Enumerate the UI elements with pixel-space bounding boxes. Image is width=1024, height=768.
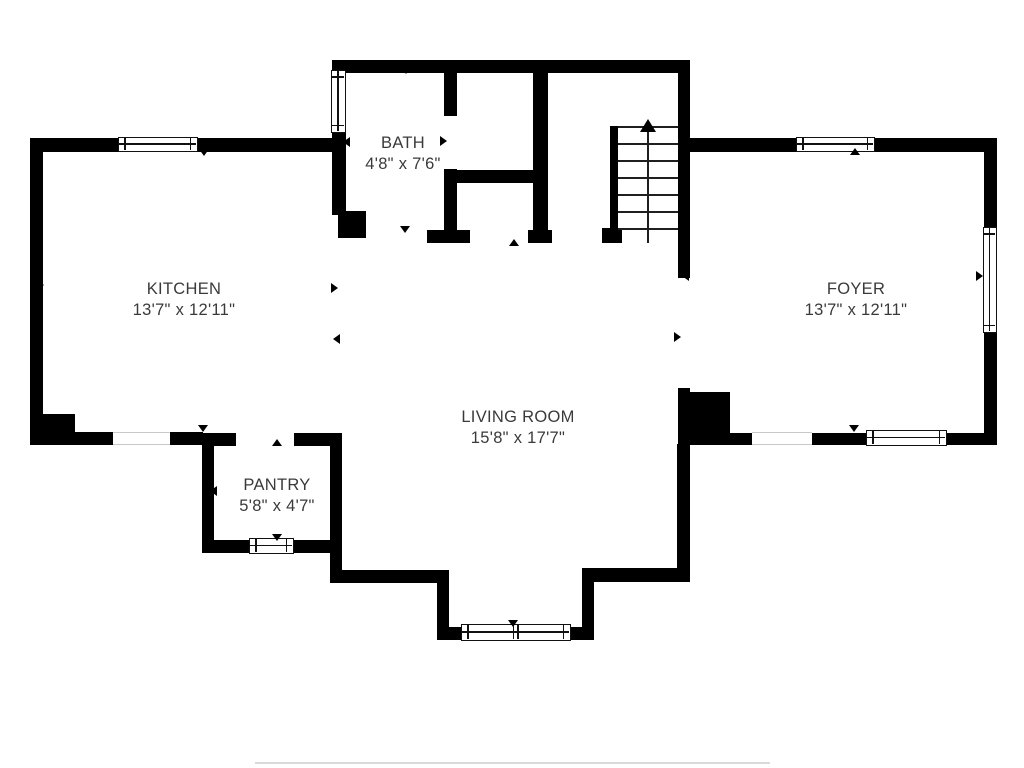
wall-segment (338, 211, 366, 238)
window-glyph (866, 430, 947, 446)
opening-marker-right (37, 280, 44, 290)
window-frame-line (467, 625, 469, 639)
room-name-kitchen: KITCHEN (133, 279, 236, 300)
window-frame-line (337, 71, 339, 131)
opening-marker-down (199, 149, 209, 156)
room-name-living-room: LIVING ROOM (461, 407, 574, 428)
window-frame-line (867, 437, 945, 439)
floor-plan: BATH 4'8" x 7'6" KITCHEN 13'7" x 12'11" … (0, 0, 1024, 768)
room-label-living-room: LIVING ROOM 15'8" x 17'7" (461, 407, 574, 449)
opening-marker-right (331, 283, 338, 293)
opening-marker-up (850, 148, 860, 155)
opening-marker-down (272, 534, 282, 541)
wall-segment (335, 60, 690, 73)
window-frame-line (286, 539, 288, 552)
room-label-foyer: FOYER 13'7" x 12'11" (805, 279, 908, 321)
room-dimensions-bath: 4'8" x 7'6" (365, 154, 440, 175)
room-label-bath: BATH 4'8" x 7'6" (365, 133, 440, 175)
opening-marker-left (682, 271, 689, 281)
room-name-pantry: PANTRY (239, 475, 314, 496)
wall-segment (812, 433, 868, 445)
window-glyph (983, 227, 997, 333)
room-label-kitchen: KITCHEN 13'7" x 12'11" (133, 279, 236, 321)
window-frame-line (513, 625, 515, 639)
window-frame-line (872, 431, 874, 444)
window-frame-line (190, 138, 192, 150)
stairs-direction-line (647, 128, 649, 243)
opening-marker-up (509, 239, 519, 246)
opening-marker-down (849, 425, 859, 432)
door-opening (752, 432, 812, 445)
window-frame-line (462, 631, 569, 633)
window-glyph (118, 137, 198, 152)
window-frame-line (984, 233, 995, 235)
door-opening (113, 432, 170, 445)
room-label-pantry: PANTRY 5'8" x 4'7" (239, 475, 314, 517)
wall-segment (444, 170, 545, 183)
wall-segment (582, 568, 690, 582)
window-glyph (331, 70, 346, 133)
window-frame-line (332, 76, 344, 78)
window-glyph (796, 137, 875, 152)
opening-marker-down (400, 226, 410, 233)
opening-marker-down (198, 425, 208, 432)
room-dimensions-foyer: 13'7" x 12'11" (805, 300, 908, 321)
wall-segment (984, 140, 997, 230)
room-name-foyer: FOYER (805, 279, 908, 300)
opening-marker-down (401, 67, 411, 74)
room-dimensions-kitchen: 13'7" x 12'11" (133, 300, 236, 321)
wall-segment (528, 230, 552, 243)
window-frame-line (867, 138, 869, 150)
room-dimensions-living-room: 15'8" x 17'7" (461, 428, 574, 449)
wall-segment (427, 230, 470, 243)
wall-segment (30, 138, 43, 445)
wall-segment (444, 60, 457, 116)
opening-marker-left (210, 486, 217, 496)
wall-segment (533, 60, 548, 243)
stairs-up-arrow (640, 119, 656, 132)
opening-marker-right (440, 136, 447, 146)
wall-segment (330, 570, 449, 583)
opening-marker-right (330, 486, 337, 496)
window-frame-line (989, 228, 991, 331)
wall-segment (30, 432, 114, 445)
wall-segment (202, 433, 236, 446)
window-frame-line (802, 138, 804, 150)
window-frame-line (517, 625, 519, 639)
window-frame-line (563, 625, 565, 639)
opening-marker-down (508, 620, 518, 627)
wall-segment (678, 433, 752, 445)
window-frame-line (124, 138, 126, 150)
window-frame-line (255, 539, 257, 552)
window-frame-line (797, 143, 873, 145)
wall-segment (690, 392, 730, 434)
window-frame-line (984, 325, 995, 327)
room-dimensions-pantry: 5'8" x 4'7" (239, 496, 314, 517)
wall-segment (984, 331, 997, 445)
wall-segment (677, 444, 690, 582)
opening-marker-up (272, 439, 282, 446)
wall-segment (610, 126, 618, 230)
opening-marker-right (674, 332, 681, 342)
wall-segment (602, 228, 622, 243)
opening-marker-left (343, 137, 350, 147)
wall-segment (678, 60, 690, 278)
window-frame-line (939, 431, 941, 444)
window-frame-line (119, 143, 196, 145)
room-name-bath: BATH (365, 133, 440, 154)
opening-marker-left (333, 334, 340, 344)
window-frame-line (332, 125, 344, 127)
page-artifact-line (255, 762, 770, 764)
opening-marker-right (976, 271, 983, 281)
wall-segment (170, 432, 203, 445)
